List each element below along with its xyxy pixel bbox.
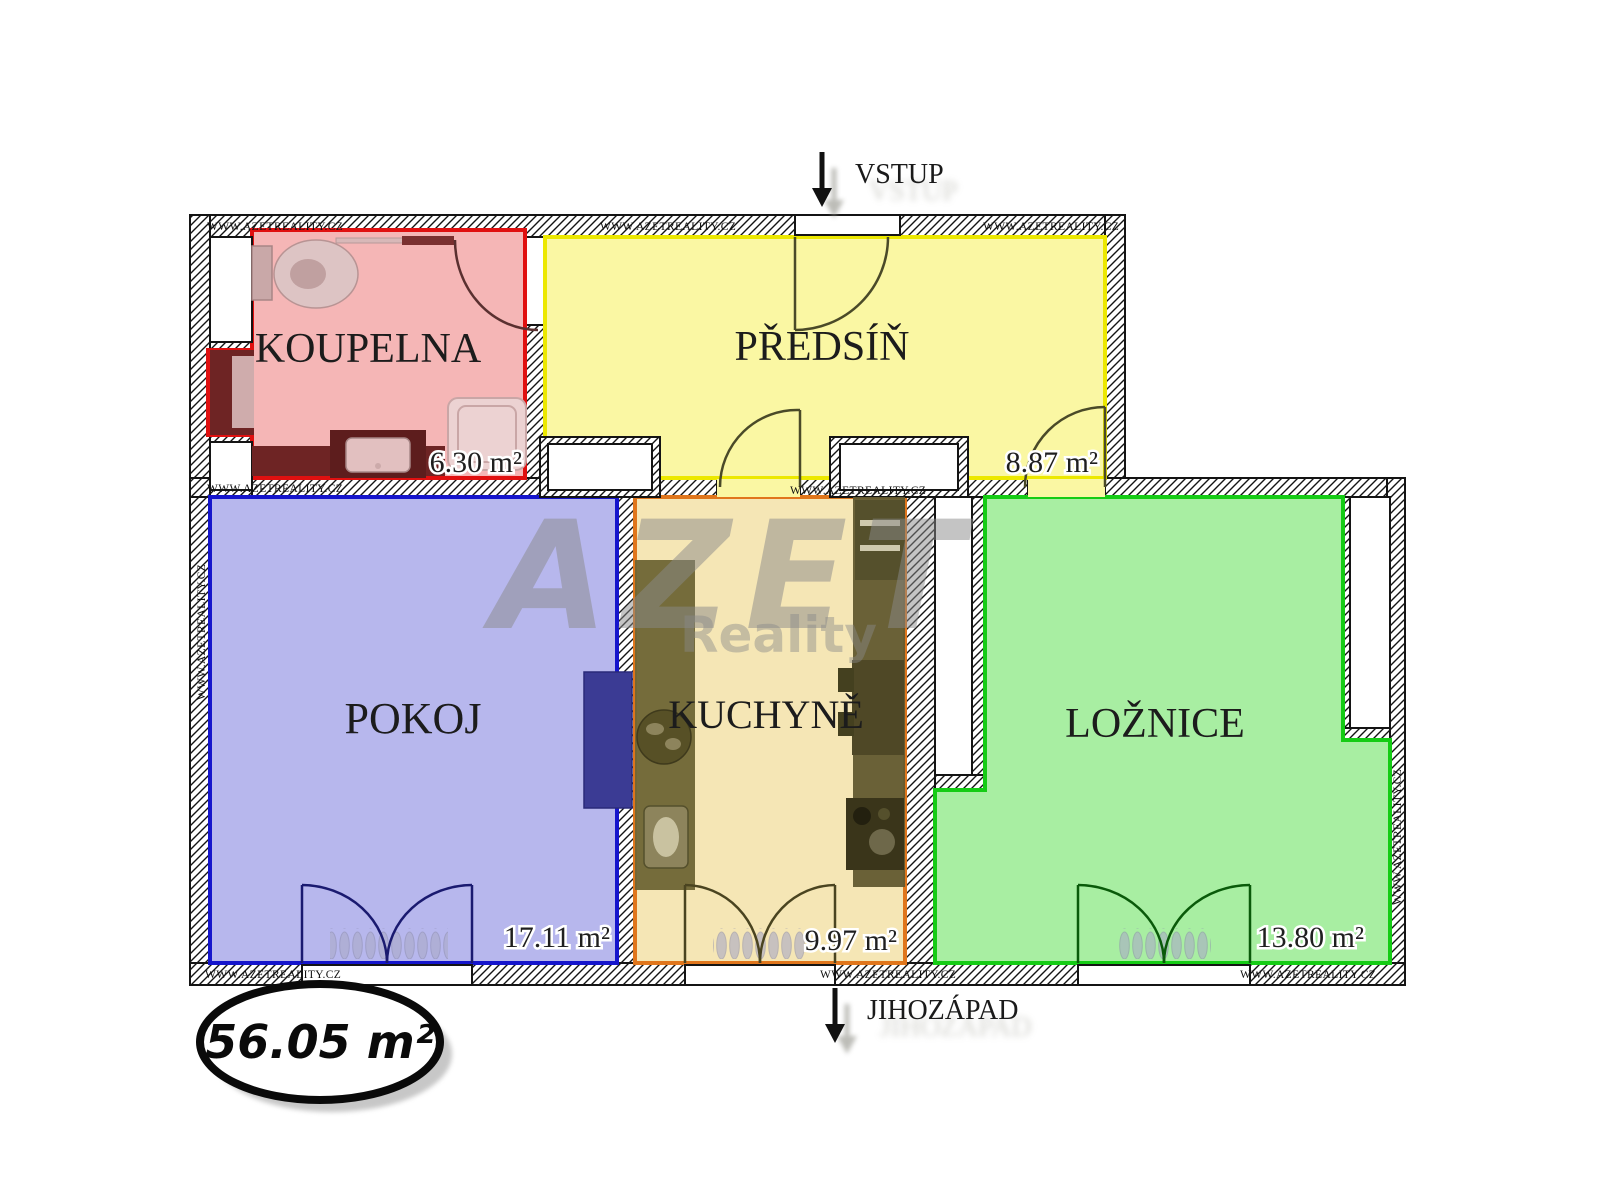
sink-drain-icon [375, 463, 381, 469]
window-recess [210, 237, 252, 342]
entrance-opening [795, 215, 900, 235]
wall-url-text: WWW.AZETREALITY.CZ [196, 564, 208, 700]
wall-url-text: WWW.AZETREALITY.CZ [207, 483, 343, 495]
room-koupelna-area: 6.30 m² [430, 446, 522, 479]
chair-icon [838, 668, 854, 692]
orientation-marker: JIHOZÁPAD JIHOZÁPAD [825, 988, 1031, 1054]
entrance-label: VSTUP [855, 159, 944, 190]
toilet-bowl-icon [290, 259, 326, 289]
floor-plan-page: AZET Reality WWW.AZETREALITY.CZ WWW.AZET… [0, 0, 1600, 1200]
entrance-arrow-icon [812, 152, 832, 207]
kitchen-sink-basin-icon [653, 817, 679, 857]
wall-url-text: WWW.AZETREALITY.CZ [207, 221, 343, 233]
doorway-predsin-loznice [1028, 479, 1105, 497]
room-kuchyne-area: 9.97 m² [805, 924, 897, 957]
bathroom-cabinet-panel-icon [232, 356, 254, 428]
balcony-opening [685, 965, 835, 985]
room-loznice-label: LOŽNICE [1065, 700, 1245, 747]
wall-url-text: WWW.AZETREALITY.CZ [1240, 969, 1376, 981]
plant-leaf-icon [665, 738, 681, 750]
watermark: AZET Reality [482, 490, 978, 664]
room-kuchyne-label: KUCHYNĚ [668, 692, 864, 737]
wall-url-text: WWW.AZETREALITY.CZ [790, 485, 926, 497]
wall-url-text: WWW.AZETREALITY.CZ [600, 221, 736, 233]
orientation-label: JIHOZÁPAD [867, 995, 1018, 1026]
shelf-icon [402, 236, 454, 245]
room-koupelna-label: KOUPELNA [255, 326, 482, 372]
wall-url-text: WWW.AZETREALITY.CZ [1392, 769, 1404, 905]
room-predsin-area: 8.87 m² [1006, 446, 1098, 479]
pokoj-furniture [584, 672, 632, 808]
watermark-reality: Reality [680, 606, 877, 664]
wardrobe-icon [584, 672, 632, 808]
total-area-badge: 56.05 m² [200, 984, 452, 1112]
wall-url-text: WWW.AZETREALITY.CZ [205, 969, 341, 981]
toilet-tank-icon [252, 246, 272, 300]
burner-icon [853, 807, 871, 825]
plant-leaf-icon [646, 723, 664, 735]
balcony-opening [1078, 965, 1250, 985]
entrance-marker: VSTUP VSTUP [812, 152, 958, 218]
shaft-recess [1350, 497, 1390, 728]
wall-niche [840, 444, 958, 490]
total-area-value: 56.05 m² [205, 1015, 435, 1069]
wall-niche [548, 444, 652, 490]
room-pokoj-area: 17.11 m² [504, 921, 610, 954]
wall-url-text: WWW.AZETREALITY.CZ [983, 221, 1119, 233]
burner-icon [878, 808, 890, 820]
room-pokoj-label: POKOJ [345, 694, 482, 743]
orientation-arrow-icon [825, 988, 845, 1043]
room-predsin-label: PŘEDSÍŇ [734, 323, 909, 370]
floor-plan: AZET Reality WWW.AZETREALITY.CZ WWW.AZET… [0, 0, 1600, 1200]
room-loznice-area: 13.80 m² [1257, 921, 1364, 954]
wall-url-text: WWW.AZETREALITY.CZ [820, 969, 956, 981]
burner-icon [869, 829, 895, 855]
